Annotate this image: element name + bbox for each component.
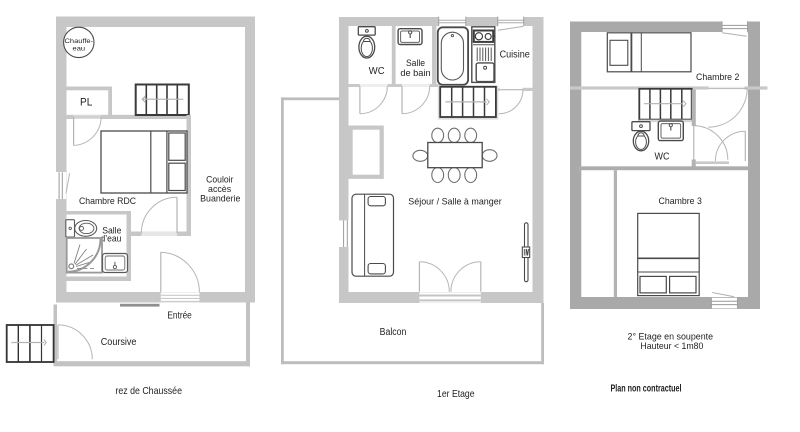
svg-text:Coursive: Coursive <box>101 337 137 348</box>
svg-text:Chambre 3: Chambre 3 <box>659 196 702 207</box>
svg-text:WC: WC <box>655 152 670 163</box>
svg-text:Cuisine: Cuisine <box>500 49 531 60</box>
svg-text:rez de Chaussée: rez de Chaussée <box>115 385 182 397</box>
svg-text:Plan non contractuel: Plan non contractuel <box>611 384 682 395</box>
svg-text:1er Etage: 1er Etage <box>437 388 475 400</box>
svg-text:d’eau: d’eau <box>101 233 122 244</box>
svg-text:Hauteur < 1m80: Hauteur < 1m80 <box>640 341 703 352</box>
svg-text:Balcon: Balcon <box>380 327 407 338</box>
svg-text:Chambre RDC: Chambre RDC <box>79 196 136 207</box>
svg-text:Buanderie: Buanderie <box>200 193 240 204</box>
svg-text:Chambre 2: Chambre 2 <box>696 72 739 83</box>
svg-text:de bain: de bain <box>400 68 430 79</box>
svg-text:Chauffe-: Chauffe- <box>65 38 94 45</box>
svg-text:eau: eau <box>73 46 86 53</box>
svg-text:PL: PL <box>80 97 92 109</box>
svg-text:Séjour / Salle à manger: Séjour / Salle à manger <box>408 197 501 208</box>
svg-text:Entrée: Entrée <box>167 311 192 322</box>
svg-text:WC: WC <box>369 66 385 77</box>
